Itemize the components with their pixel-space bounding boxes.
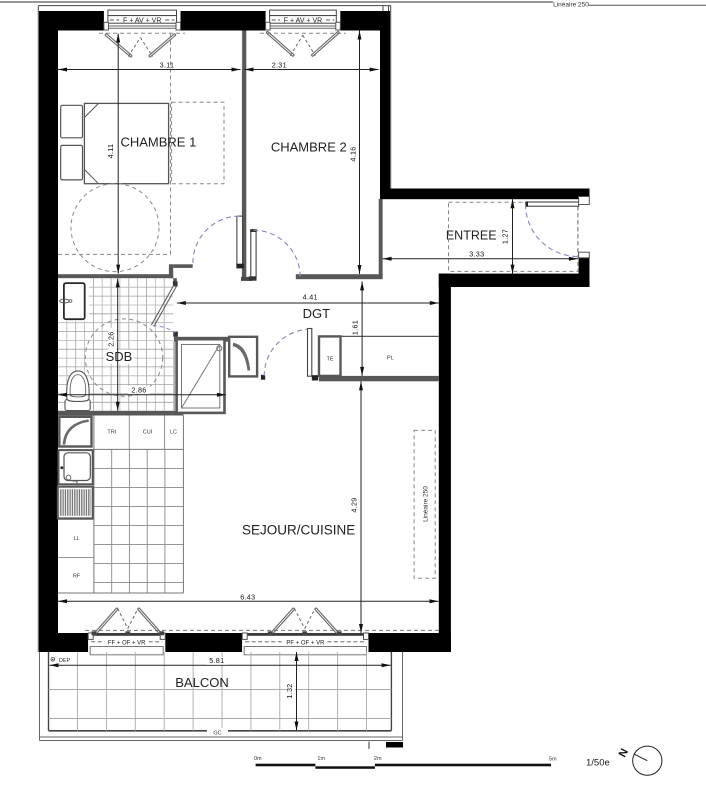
svg-text:F + AV + VR: F + AV + VR [123, 18, 161, 25]
svg-text:RF: RF [73, 574, 81, 580]
svg-text:1m: 1m [317, 756, 325, 762]
svg-text:F + AV + VR: F + AV + VR [284, 18, 322, 25]
svg-text:CHAMBRE 1: CHAMBRE 1 [120, 135, 196, 150]
svg-text:2m: 2m [374, 756, 382, 762]
svg-text:4.16: 4.16 [349, 146, 358, 161]
svg-text:2.86: 2.86 [131, 385, 146, 394]
svg-text:BALCON: BALCON [175, 675, 228, 690]
svg-text:GC: GC [213, 731, 221, 737]
svg-text:2.26: 2.26 [107, 331, 116, 346]
svg-text:LL: LL [73, 536, 79, 542]
svg-text:1.61: 1.61 [351, 320, 360, 335]
svg-text:0m: 0m [254, 756, 262, 762]
svg-text:CUI: CUI [143, 430, 153, 436]
svg-text:4.41: 4.41 [303, 293, 318, 302]
svg-text:6.43: 6.43 [240, 592, 255, 601]
svg-text:ENTREE: ENTREE [446, 228, 497, 242]
svg-text:Linéaire 250: Linéaire 250 [553, 2, 589, 9]
svg-text:DEP: DEP [59, 658, 71, 664]
svg-text:3.33: 3.33 [469, 250, 484, 259]
svg-text:5m: 5m [549, 757, 557, 763]
svg-text:PF + OF + VR: PF + OF + VR [286, 641, 325, 647]
svg-text:2.31: 2.31 [272, 61, 287, 70]
svg-text:4.11: 4.11 [106, 144, 115, 159]
svg-text:PL: PL [387, 356, 394, 362]
svg-text:CHAMBRE 2: CHAMBRE 2 [271, 140, 347, 155]
svg-text:4.29: 4.29 [350, 497, 359, 512]
svg-text:1.32: 1.32 [285, 683, 294, 698]
svg-text:SDB: SDB [106, 349, 133, 364]
svg-text:5.81: 5.81 [209, 656, 224, 665]
svg-text:3.11: 3.11 [160, 61, 175, 70]
svg-text:TRI: TRI [107, 430, 116, 436]
svg-text:Linéaire 250: Linéaire 250 [423, 486, 430, 522]
svg-text:1.27: 1.27 [501, 229, 510, 244]
svg-text:TE: TE [326, 357, 333, 363]
svg-text:SEJOUR/CUISINE: SEJOUR/CUISINE [242, 522, 355, 537]
svg-text:DGT: DGT [303, 306, 331, 321]
svg-text:LC: LC [170, 430, 177, 436]
svg-text:FF + OF + VR: FF + OF + VR [108, 641, 146, 647]
svg-text:1/50e: 1/50e [586, 758, 610, 769]
